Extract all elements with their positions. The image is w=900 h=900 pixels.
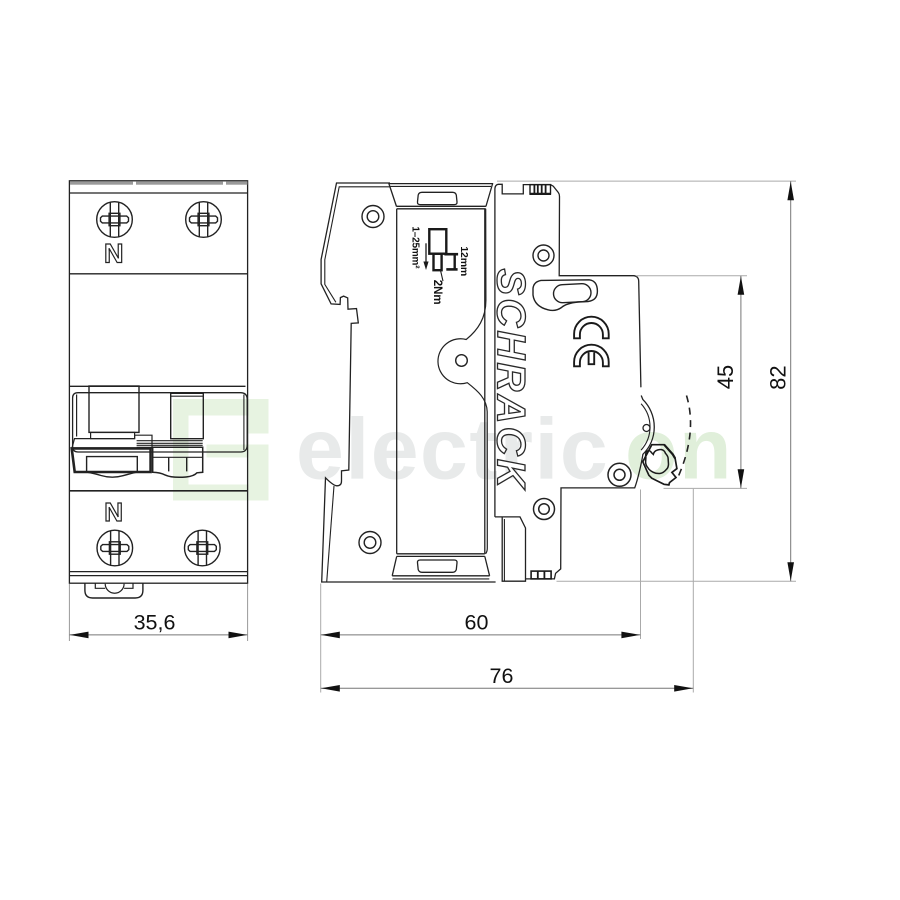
svg-text:82: 82 [766, 365, 791, 389]
svg-text:76: 76 [490, 664, 514, 688]
svg-text:N: N [104, 497, 123, 527]
svg-text:12mm: 12mm [458, 246, 470, 276]
svg-text:N: N [104, 239, 124, 269]
svg-text:35,6: 35,6 [134, 610, 176, 634]
svg-text:60: 60 [465, 610, 489, 634]
svg-text:45: 45 [713, 365, 738, 389]
svg-text:2Nm: 2Nm [431, 280, 443, 305]
svg-text:electric: electric [296, 402, 609, 498]
svg-text:1–25mm²: 1–25mm² [410, 226, 421, 269]
